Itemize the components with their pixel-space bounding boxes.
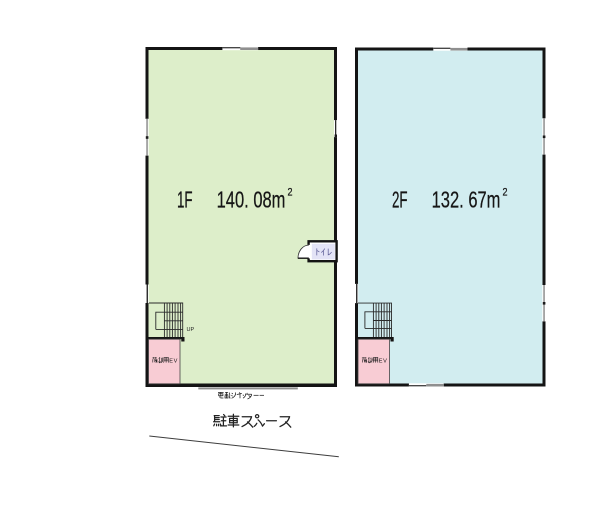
svg-text:UP: UP xyxy=(187,327,195,333)
svg-text:1F: 1F xyxy=(177,187,193,213)
svg-text:2: 2 xyxy=(288,187,293,199)
svg-text:EV: EV xyxy=(379,359,387,365)
svg-text:132. 67m: 132. 67m xyxy=(432,188,501,213)
svg-text:2F: 2F xyxy=(392,187,408,213)
svg-text:EV: EV xyxy=(169,359,177,365)
svg-text:140. 08m: 140. 08m xyxy=(217,188,286,213)
svg-text:2: 2 xyxy=(503,187,508,199)
